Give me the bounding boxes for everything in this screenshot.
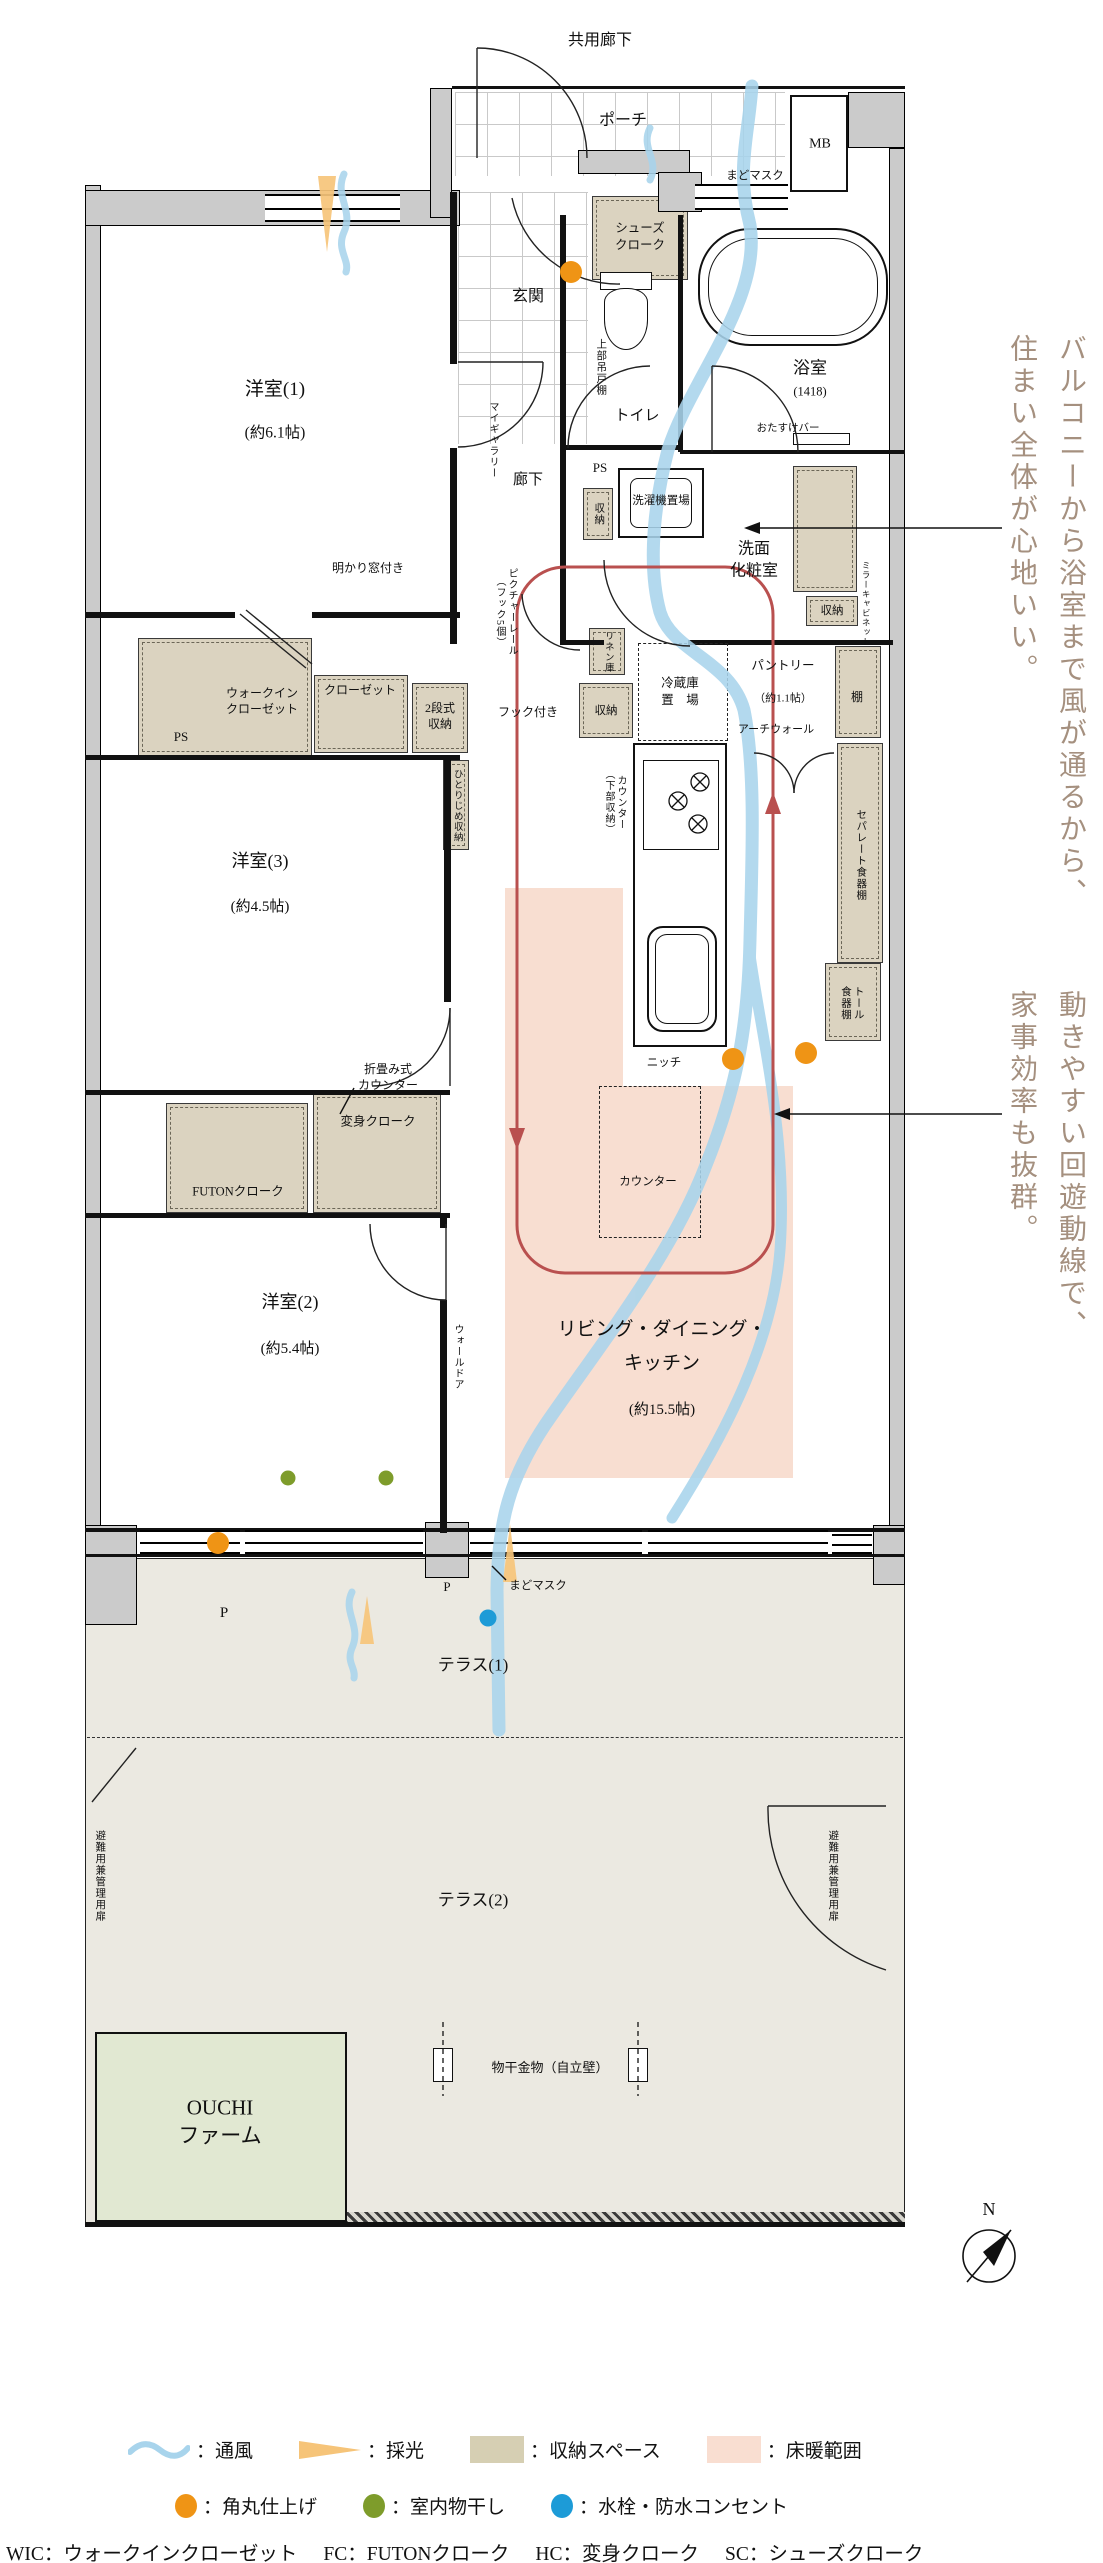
label-storage-vanity: 収納	[821, 604, 844, 620]
legend-label: ：採光	[367, 2436, 424, 2463]
label-bedroom3: 洋室(3)	[232, 849, 289, 873]
legend-item-wave: ：通風	[128, 2436, 253, 2463]
label-ouchi-farm: OUCHI ファーム	[178, 2094, 261, 2151]
label-terrace2: テラス(2)	[438, 1890, 508, 1913]
abbr-sc: SC：シューズクローク	[725, 2537, 923, 2563]
legend-label: ：室内物干し	[391, 2492, 505, 2519]
label-pantry: パントリー	[751, 658, 814, 675]
label-linen: リネン庫	[601, 631, 612, 673]
label-mb: MB	[809, 136, 831, 155]
plan-annotations	[0, 0, 1103, 2563]
label-bathroom: 浴室	[793, 358, 827, 381]
legend-abbreviations: WIC：ウォークインクローゼットFC：FUTONクロークHC：変身クロークSC：…	[6, 2537, 949, 2563]
label-ps-left: PS	[174, 728, 188, 746]
label-bedroom2-size: (約5.4帖)	[261, 1339, 320, 1359]
label-counter-lower-storage: カウンター （下部収納）	[602, 769, 626, 835]
orange-dot-icon	[175, 2494, 197, 2518]
label-niche: ニッチ	[647, 1056, 682, 1072]
legend-label: ：角丸仕上げ	[203, 2492, 317, 2519]
legend-item-green-dot: ：室内物干し	[363, 2492, 505, 2519]
label-two-tier-storage: 2段式 収納	[425, 700, 455, 732]
label-storage-sanitary: 収納	[592, 503, 605, 526]
light-triangle-icon	[299, 2441, 361, 2459]
label-shelf: 棚	[851, 689, 863, 705]
label-pillar-p1: P	[220, 1603, 228, 1623]
label-ps-top: PS	[593, 459, 607, 477]
legend-item-blue-dot: ：水栓・防水コンセント	[551, 2492, 788, 2519]
label-arch-wall: アーチウォール	[738, 723, 814, 738]
label-hook: フック付き	[498, 704, 558, 720]
label-storage-kitchen: 収納	[595, 704, 618, 720]
label-wall-door: ウォールドア	[451, 1324, 463, 1390]
label-counter-island: カウンター	[619, 1175, 677, 1191]
label-henshin-cloak: 変身クローク	[340, 1114, 415, 1131]
label-bedroom2: 洋室(2)	[262, 1290, 319, 1314]
label-madomask-top: まどマスク	[726, 169, 784, 185]
side-note-circulation: 動きやすい回遊動線で、 家事効率も抜群。	[997, 990, 1095, 1410]
label-closet: クローゼット	[324, 682, 396, 698]
compass-icon	[963, 2230, 1015, 2282]
label-ldk-size: (約15.5帖)	[629, 1400, 695, 1420]
legend-item-floor-heating-swatch: ：床暖範囲	[707, 2436, 862, 2463]
legend-row-dots: ：角丸仕上げ：室内物干し：水栓・防水コンセント	[175, 2492, 834, 2519]
label-picture-rail: ピクチャーレール （フック5個）	[493, 568, 517, 656]
label-bathroom-size: (1418)	[793, 384, 826, 401]
abbr-fc: FC：FUTONクローク	[323, 2537, 509, 2563]
label-akari-window: 明かり窓付き	[332, 560, 404, 576]
label-pantry-size: （約1.1帖）	[754, 692, 812, 707]
label-bedroom3-size: (約4.5帖)	[231, 897, 290, 917]
legend-item-orange-dot: ：角丸仕上げ	[175, 2492, 317, 2519]
blue-dot-icon	[551, 2494, 573, 2518]
label-otasuke-bar: おたすけバー	[757, 422, 820, 436]
label-escape-door-right: 避難用兼管理用扉	[826, 1830, 839, 1922]
label-washer-space: 洗濯機置場	[632, 494, 690, 510]
label-my-gallery: マイギャラリー	[486, 402, 498, 479]
label-bedroom1-size: (約6.1帖)	[245, 424, 306, 445]
label-mirror-cabinet: ミラーキャビネット	[861, 561, 871, 647]
label-monohoshi: 物干金物（自立壁）	[491, 2059, 608, 2077]
label-upper-hanging-shelf: 上部吊戸棚	[594, 338, 607, 396]
legend-label: ：床暖範囲	[767, 2436, 862, 2463]
floor-plan-page: 共用廊下ポーチMBまどマスクシューズ クローク玄関トイレ上部吊戸棚浴室(1418…	[0, 0, 1103, 2563]
label-powder-room: 洗面 化粧室	[730, 538, 778, 581]
label-walk-in-closet: ウォークイン クローゼット	[226, 685, 298, 717]
legend-label: ：通風	[196, 2436, 253, 2463]
label-madomask-bottom: まどマスク	[509, 1579, 567, 1595]
legend-item-light-triangle: ：採光	[299, 2436, 424, 2463]
label-entrance: 玄関	[512, 286, 544, 308]
legend-label: ：収納スペース	[530, 2436, 661, 2463]
storage-swatch-icon	[470, 2436, 524, 2463]
label-terrace1: テラス(1)	[438, 1655, 508, 1678]
legend-row-symbols: ：通風：採光：収納スペース：床暖範囲	[128, 2436, 908, 2463]
label-pillar-p2: P	[443, 1578, 450, 1596]
label-tall-cupboard: トール 食器棚	[838, 986, 863, 1021]
label-hitorijime-storage: ひとりじめ収納	[450, 769, 461, 843]
label-ldk: リビング・ダイニング・ キッチン	[557, 1313, 766, 1381]
label-separate-cupboard: セパレート食器棚	[854, 809, 867, 901]
label-compass-n: N	[983, 2197, 996, 2221]
abbr-wic: WIC：ウォークインクローゼット	[6, 2537, 297, 2563]
green-dot-icon	[363, 2494, 385, 2518]
label-escape-door-left: 避難用兼管理用扉	[93, 1830, 106, 1922]
abbr-hc: HC：変身クローク	[535, 2537, 699, 2563]
label-toilet: トイレ	[614, 406, 659, 426]
label-fridge-space: 冷蔵庫 置 場	[661, 675, 699, 709]
legend-label: ：水栓・防水コンセント	[579, 2492, 788, 2519]
legend-item-storage-swatch: ：収納スペース	[470, 2436, 661, 2463]
wave-icon	[128, 2440, 190, 2460]
label-shoes-cloak: シューズ クローク	[615, 220, 665, 254]
label-hallway: 廊下	[513, 470, 543, 490]
label-porch: ポーチ	[599, 110, 647, 132]
floor-heating-swatch-icon	[707, 2436, 761, 2463]
label-futon-cloak: FUTONクローク	[192, 1184, 283, 1201]
label-folding-counter: 折畳み式 カウンター	[358, 1061, 418, 1093]
label-common-corridor: 共用廊下	[568, 30, 632, 52]
side-note-ventilation: バルコニーから浴室まで風が通るから、 住まい全体が心地いい。	[997, 334, 1095, 954]
label-bedroom1: 洋室(1)	[245, 377, 305, 403]
